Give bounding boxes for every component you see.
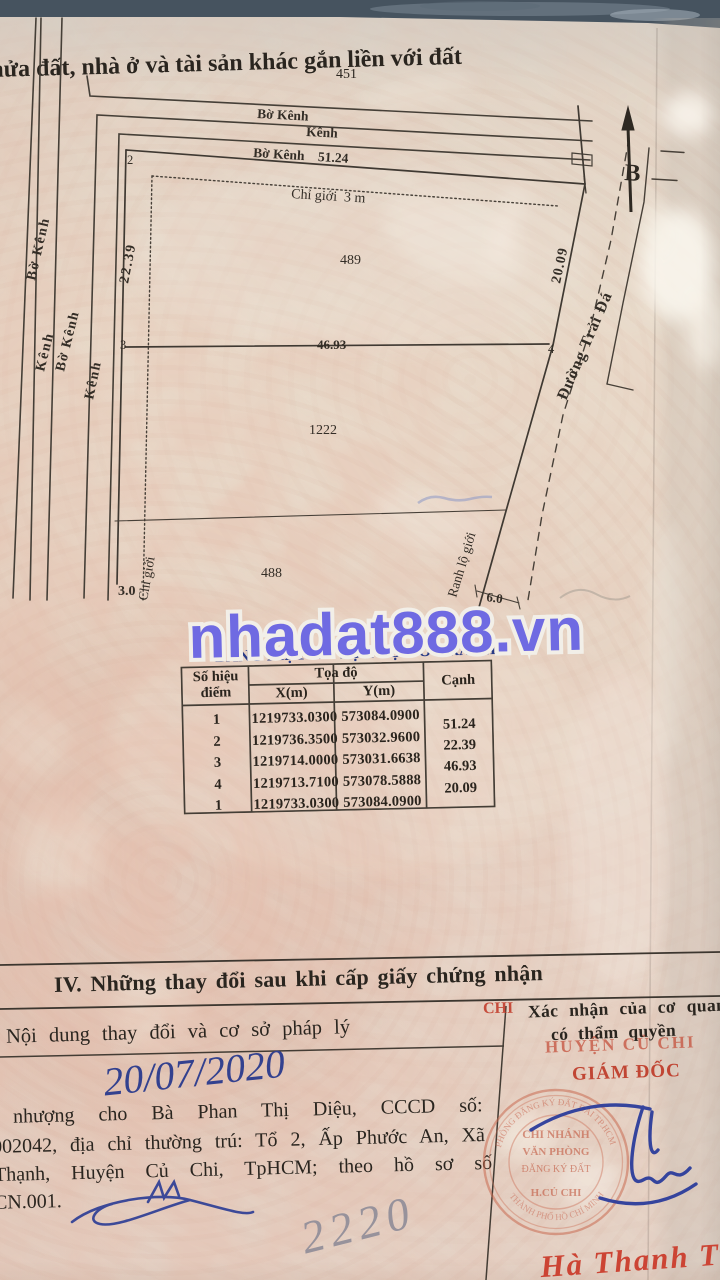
svg-text:VĂN PHÒNG: VĂN PHÒNG [523,1146,590,1158]
svg-text:H.CỦ CHI: H.CỦ CHI [531,1187,582,1199]
svg-text:ĐĂNG KÝ ĐẤT: ĐĂNG KÝ ĐẤT [522,1162,591,1175]
